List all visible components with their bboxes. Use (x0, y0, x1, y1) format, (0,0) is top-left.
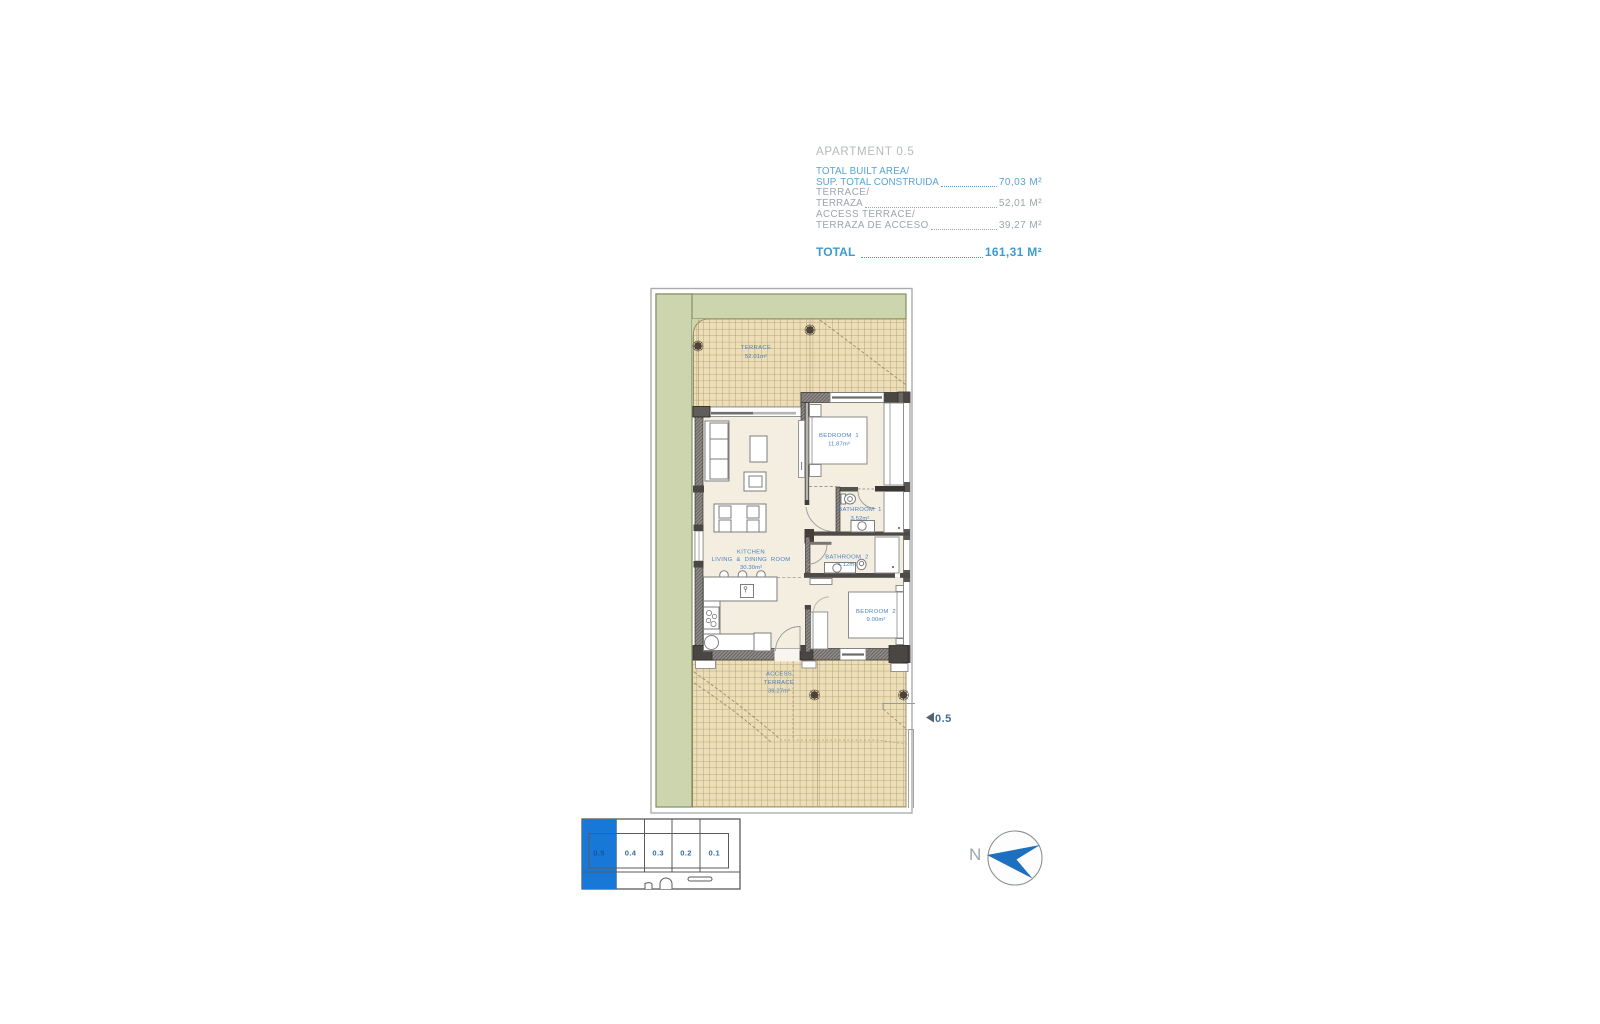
svg-text:0.4: 0.4 (625, 849, 637, 858)
svg-text:0.3: 0.3 (652, 849, 664, 858)
svg-text:LIVING & DINING ROOM: LIVING & DINING ROOM (712, 557, 791, 563)
svg-text:0.5: 0.5 (935, 713, 952, 725)
svg-text:52.01m²: 52.01m² (745, 354, 767, 360)
svg-text:BEDROOM 1: BEDROOM 1 (819, 433, 859, 439)
svg-text:3.52m²: 3.52m² (851, 516, 870, 522)
svg-text:KITCHEN: KITCHEN (737, 549, 765, 555)
svg-text:0.5: 0.5 (593, 849, 605, 858)
svg-text:N: N (969, 845, 981, 864)
svg-text:TERRACE: TERRACE (741, 345, 771, 351)
svg-text:39.27m²: 39.27m² (768, 689, 790, 695)
svg-text:BEDROOM 2: BEDROOM 2 (856, 609, 896, 615)
svg-text:9.00m²: 9.00m² (867, 617, 886, 623)
svg-text:0.2: 0.2 (680, 849, 692, 858)
svg-text:0.1: 0.1 (708, 849, 720, 858)
svg-text:30.30m²: 30.30m² (740, 565, 762, 571)
svg-text:BATHROOM 1: BATHROOM 1 (838, 507, 881, 513)
svg-text:11.87m²: 11.87m² (828, 442, 850, 448)
svg-text:4.12m²: 4.12m² (838, 562, 857, 568)
svg-text:BATHROOM 2: BATHROOM 2 (825, 555, 868, 561)
svg-text:TERRACE: TERRACE (764, 680, 794, 686)
svg-text:ACCESS: ACCESS (766, 672, 792, 678)
